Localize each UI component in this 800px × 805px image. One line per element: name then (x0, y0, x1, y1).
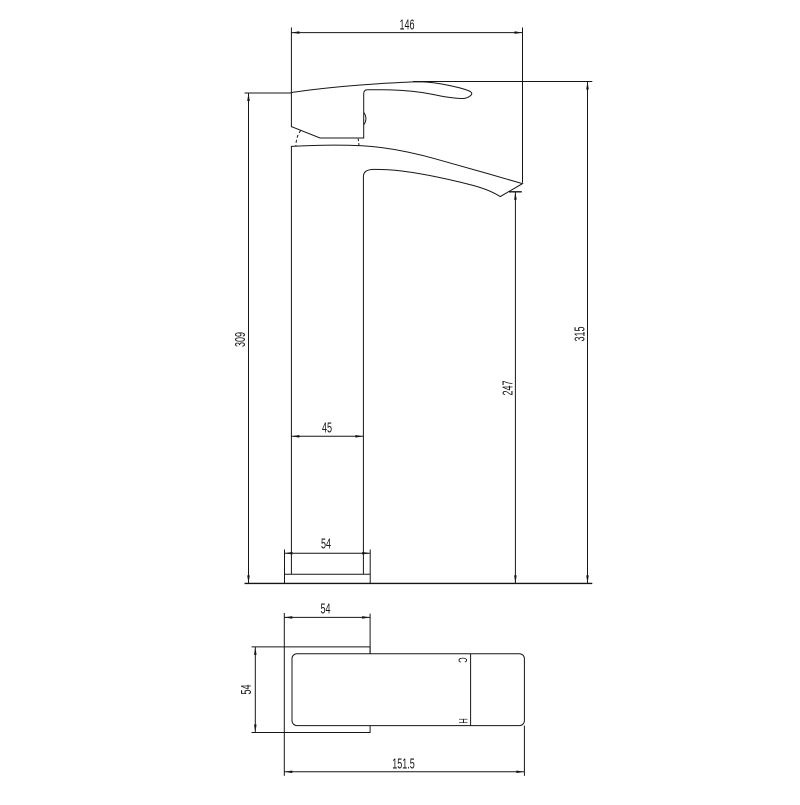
svg-text:54: 54 (321, 535, 331, 552)
svg-text:146: 146 (400, 16, 415, 33)
svg-text:247: 247 (499, 380, 516, 395)
svg-text:54: 54 (238, 684, 255, 694)
svg-text:H: H (455, 718, 468, 723)
svg-text:C: C (455, 657, 468, 662)
svg-text:315: 315 (571, 326, 588, 341)
svg-text:151.5: 151.5 (392, 755, 415, 772)
svg-text:309: 309 (232, 332, 249, 347)
svg-text:54: 54 (321, 600, 331, 617)
svg-text:45: 45 (322, 419, 332, 436)
